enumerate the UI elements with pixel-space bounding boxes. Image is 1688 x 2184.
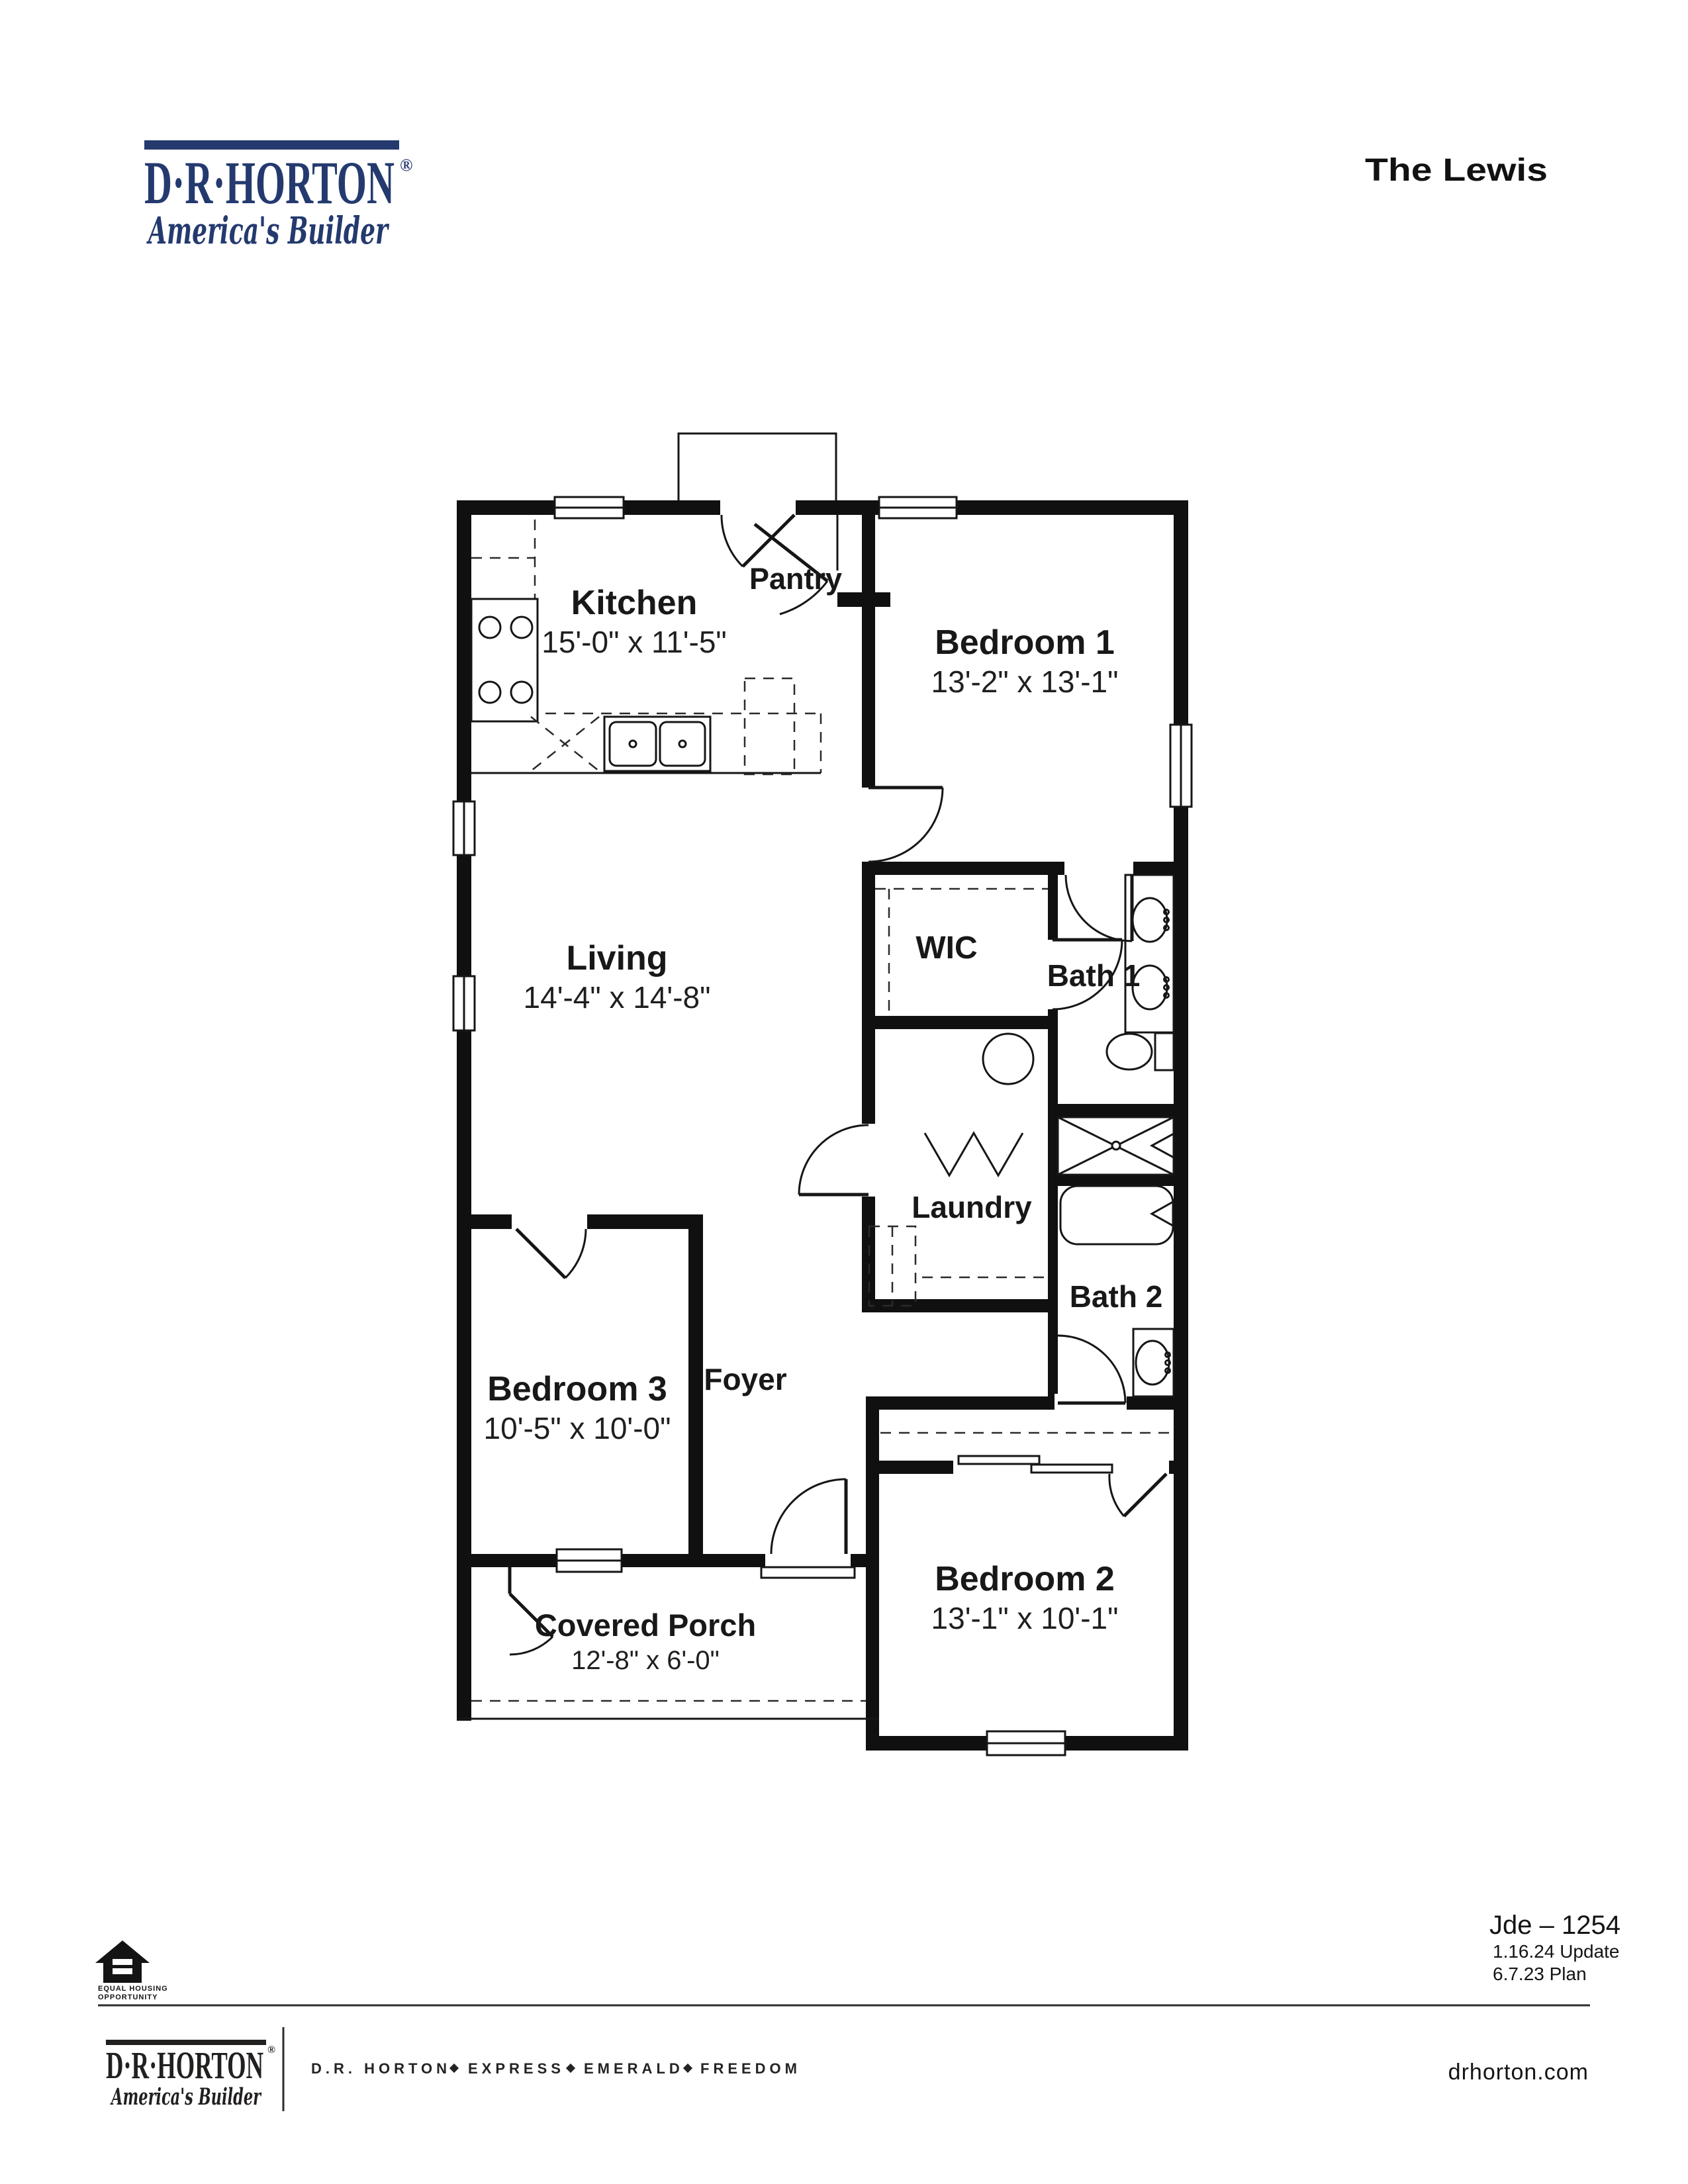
- footer-brand-logo: D·R·HORTON ® America's Builder: [106, 2040, 275, 2111]
- window-bedroom1-right: [1170, 725, 1192, 807]
- brand-registered-mark: ®: [400, 156, 412, 175]
- opening: [1064, 859, 1133, 878]
- footer-brand-registered: ®: [267, 2044, 275, 2056]
- wall-segment: [862, 1016, 1058, 1029]
- header-brand-logo: D·R·HORTON ® America's Builder: [144, 140, 412, 253]
- toilet-tank: [1155, 1033, 1174, 1070]
- room-label-bath2: Bath 2: [1070, 1279, 1163, 1314]
- room-dims-bedroom1: 13'-2" x 13'-1": [931, 664, 1119, 699]
- brand-tagline: America's Builder: [146, 209, 389, 253]
- wall-segment: [1048, 1104, 1188, 1117]
- brand-name: D·R·HORTON: [144, 149, 395, 216]
- window-living-upper: [453, 801, 475, 855]
- room-label-bedroom3: Bedroom 3: [487, 1370, 667, 1408]
- plan-id: Jde – 1254: [1489, 1911, 1620, 1940]
- stove-icon: [471, 599, 538, 721]
- wall-segment: [1048, 1009, 1058, 1396]
- footer-brand-tagline: America's Builder: [110, 2083, 262, 2111]
- room-label-foyer: Foyer: [704, 1362, 786, 1396]
- room-label-bedroom2: Bedroom 2: [935, 1560, 1115, 1598]
- footer-website-link[interactable]: drhorton.com: [1448, 2060, 1589, 2085]
- room-dims-kitchen: 15'-0" x 11'-5": [541, 625, 727, 659]
- room-label-wic: WIC: [915, 931, 977, 966]
- window-bedroom1-top: [879, 497, 957, 518]
- series-item-emerald: EMERALD: [584, 2060, 684, 2077]
- wall-segment: [862, 862, 1188, 875]
- series-item-freedom: FREEDOM: [700, 2060, 801, 2077]
- logo-overbar: [144, 140, 399, 150]
- room-dims-porch: 12'-8" x 6'-0": [571, 1646, 720, 1675]
- room-dims-bedroom3: 10'-5" x 10'-0": [484, 1411, 671, 1445]
- room-dims-bedroom2: 13'-1" x 10'-1": [931, 1601, 1119, 1635]
- floorplan-page: D·R·HORTON ® America's Builder The Lewis: [0, 0, 1688, 2184]
- toilet-icon: [1107, 1034, 1152, 1069]
- room-label-pantry: Pantry: [749, 562, 842, 596]
- bypass-door-panel: [959, 1456, 1039, 1464]
- footer-brand-name: D·R·HORTON: [106, 2044, 263, 2087]
- wall-segment: [862, 515, 875, 788]
- footer-series-line: D.R. HORTON EXPRESS EMERALD FREEDOM: [311, 2060, 801, 2077]
- window-bedroom3: [557, 1549, 622, 1572]
- room-label-kitchen: Kitchen: [571, 584, 698, 622]
- equal-housing-line2: OPPORTUNITY: [98, 1993, 158, 2001]
- wall-segment: [1048, 875, 1058, 940]
- room-label-laundry: Laundry: [912, 1190, 1032, 1224]
- wall-segment: [866, 1396, 1188, 1410]
- opening: [859, 1124, 878, 1197]
- room-label-bath1: Bath 1: [1047, 958, 1141, 993]
- page-title: The Lewis: [1365, 153, 1548, 188]
- opening: [512, 1212, 587, 1232]
- wall-segment: [1169, 1461, 1188, 1474]
- window-living-lower: [453, 976, 475, 1030]
- series-item-drhorton: D.R. HORTON: [311, 2060, 451, 2077]
- wall-segment: [837, 592, 890, 607]
- window-bedroom2: [987, 1731, 1065, 1755]
- room-label-bedroom1: Bedroom 1: [935, 623, 1115, 662]
- front-door-sill: [761, 1567, 855, 1578]
- double-sink-icon: [604, 717, 710, 771]
- opening: [720, 498, 796, 518]
- room-label-porch: Covered Porch: [535, 1608, 756, 1643]
- plan-date: 6.7.23 Plan: [1493, 1964, 1587, 1984]
- series-item-express: EXPRESS: [468, 2060, 565, 2077]
- room-dims-living: 14'-4" x 14'-8": [524, 980, 711, 1015]
- window-kitchen: [555, 497, 624, 518]
- room-label-living: Living: [566, 939, 667, 978]
- plan-update-date: 1.16.24 Update: [1493, 1941, 1620, 1962]
- equal-housing-line1: EQUAL HOUSING: [98, 1985, 168, 1993]
- wall-segment: [1174, 500, 1188, 1751]
- wall-segment: [1048, 1175, 1188, 1186]
- wall-segment: [862, 875, 875, 1125]
- wall-segment: [457, 500, 471, 1721]
- wall-segment: [688, 1229, 703, 1554]
- page-background: [0, 0, 1688, 2184]
- vanity-counter: [1133, 1329, 1174, 1396]
- bypass-door-panel: [1031, 1465, 1112, 1473]
- wall-segment: [866, 1461, 953, 1474]
